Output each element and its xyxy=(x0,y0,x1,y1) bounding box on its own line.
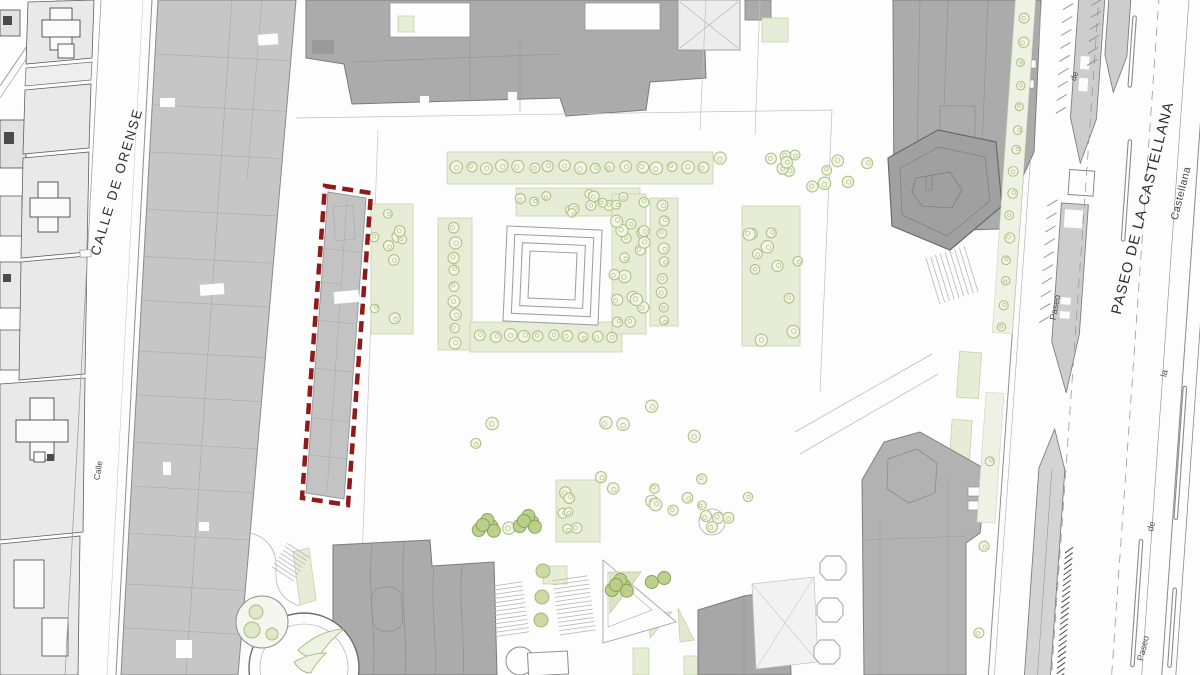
tree-icon xyxy=(549,330,559,340)
hatch-tick xyxy=(1059,634,1067,641)
tree-icon xyxy=(389,255,400,266)
tree-icon xyxy=(491,332,502,343)
tree-icon xyxy=(755,334,767,346)
green-circle xyxy=(244,622,260,638)
hatch-tick xyxy=(1059,629,1067,636)
tree-icon xyxy=(974,628,985,639)
dense-tree-icon xyxy=(609,578,622,591)
courtyard xyxy=(200,283,225,296)
tree-icon xyxy=(650,498,662,510)
tree-icon xyxy=(481,163,493,175)
courtyard xyxy=(258,33,279,45)
platform-opening xyxy=(1059,311,1069,319)
stair-line xyxy=(556,601,592,606)
tree-icon xyxy=(723,512,734,523)
hatch-tick xyxy=(1062,591,1070,598)
building-footprint xyxy=(42,20,80,37)
hatch-tick xyxy=(1044,238,1054,246)
hatch-tick xyxy=(1043,264,1053,272)
plan-svg: CALLE DE ORENSE Calle PASEO DE LA CASTEL… xyxy=(0,0,1200,675)
tree-icon xyxy=(832,155,844,167)
parcel xyxy=(23,84,91,154)
tree-icon xyxy=(1016,81,1025,90)
hatch-tick xyxy=(1061,607,1069,614)
tree-icon xyxy=(449,337,461,349)
platform-opening xyxy=(1078,78,1088,92)
tree-icon xyxy=(657,200,668,211)
stairs-hatch xyxy=(552,576,595,635)
hatch-tick xyxy=(1056,106,1066,114)
hatch-tick xyxy=(1065,552,1073,559)
tree-icon xyxy=(743,228,755,240)
central-monument xyxy=(503,226,602,325)
edge-building xyxy=(0,330,20,370)
tree-icon xyxy=(999,300,1009,310)
courtyard xyxy=(160,98,175,107)
stair-line xyxy=(558,613,594,618)
tree-icon xyxy=(512,160,524,172)
green-area xyxy=(742,206,800,346)
building-footprint xyxy=(16,420,68,442)
tree-icon xyxy=(842,176,853,187)
hatch-tick xyxy=(1044,251,1054,259)
tree-icon xyxy=(862,158,873,169)
roof-detail xyxy=(312,40,334,54)
tree-icon xyxy=(571,523,582,534)
monument-square xyxy=(503,226,602,325)
tree-icon xyxy=(600,417,612,429)
green-circle xyxy=(536,564,550,578)
stair-line xyxy=(555,597,591,602)
edge-building xyxy=(0,196,22,236)
building-footprint xyxy=(30,198,70,217)
tree-icon xyxy=(807,181,818,192)
hatch-tick xyxy=(1059,55,1069,63)
tree-icon xyxy=(486,417,498,429)
stair-line xyxy=(553,584,589,589)
tree-icon xyxy=(688,430,700,442)
label-paseo-de-la-castellana: PASEO DE LA CASTELLANA xyxy=(1109,100,1177,316)
building-block xyxy=(121,0,296,675)
tree-icon xyxy=(564,508,573,517)
hatch-tick xyxy=(1057,667,1065,674)
hatch-tick xyxy=(1042,277,1052,285)
green-circle xyxy=(534,613,548,627)
hatch-tick xyxy=(1062,585,1070,592)
courtyard xyxy=(585,3,660,30)
hatch-tick xyxy=(1058,645,1066,652)
tree-icon xyxy=(750,265,760,275)
tree-icon xyxy=(766,153,777,164)
tree-icon xyxy=(1005,211,1014,220)
hatch-tick xyxy=(1061,602,1069,609)
tree-icon xyxy=(617,418,630,431)
green-area xyxy=(293,548,316,605)
label-de-right: de xyxy=(1145,520,1157,532)
tree-icon xyxy=(611,215,623,227)
hatch-tick xyxy=(1046,212,1056,220)
tree-icon xyxy=(607,332,617,342)
tree-icon xyxy=(450,161,462,173)
tree-icon xyxy=(575,162,587,174)
label-paseo-bottom: Paseo xyxy=(1135,635,1151,662)
stair-line xyxy=(559,626,595,631)
building-footprint xyxy=(34,452,45,462)
tree-icon xyxy=(639,226,650,237)
stair-line xyxy=(555,592,591,597)
stair-line xyxy=(557,609,593,614)
edge-building-detail xyxy=(3,274,11,282)
tree-icon xyxy=(609,269,619,279)
stair-line xyxy=(559,622,595,627)
tree-icon xyxy=(504,329,517,342)
access-structure xyxy=(1068,169,1095,196)
hatch-tick xyxy=(1062,16,1072,24)
tree-icon xyxy=(496,160,508,172)
tree-icon xyxy=(618,270,630,282)
tree-icon xyxy=(1019,13,1030,24)
hatch-tick xyxy=(1047,199,1057,207)
building-detail xyxy=(47,454,54,461)
tree-icon xyxy=(657,274,667,284)
tree-icon xyxy=(612,294,623,305)
planter-octagon xyxy=(817,598,843,622)
hatch-tick xyxy=(1045,225,1055,233)
tree-icon xyxy=(997,323,1006,332)
hatch-tick xyxy=(1060,42,1070,50)
tree-icon xyxy=(619,193,628,202)
tree-icon xyxy=(714,152,726,164)
hatch-tick xyxy=(1063,580,1071,587)
tree-icon xyxy=(389,313,400,324)
tree-icon xyxy=(818,177,830,189)
green-circle xyxy=(535,590,549,604)
tree-icon xyxy=(682,161,695,174)
tree-icon xyxy=(590,163,600,173)
courtyard xyxy=(176,640,192,658)
courtyard xyxy=(163,462,171,475)
tree-icon xyxy=(668,505,678,515)
building-footprint xyxy=(42,618,68,656)
tree-icon xyxy=(450,309,461,320)
tree-icon xyxy=(449,237,461,249)
label-castellana: Castellana xyxy=(1169,165,1194,221)
tree-icon xyxy=(383,241,393,251)
hatch-tick xyxy=(1060,623,1068,630)
green-area xyxy=(956,351,981,398)
dense-tree-icon xyxy=(658,572,671,585)
hatch-tick xyxy=(1058,68,1068,76)
planter-octagons xyxy=(814,556,846,664)
stair-line xyxy=(491,599,525,604)
tree-icon xyxy=(784,293,794,303)
walkway-curve xyxy=(248,532,300,606)
dense-tree-icon xyxy=(476,518,489,531)
planter-circle xyxy=(236,596,288,648)
parcel xyxy=(19,256,87,380)
tree-icon xyxy=(650,162,663,175)
hatch-tick xyxy=(1063,574,1071,581)
tree-icon xyxy=(533,331,543,341)
tree-icon xyxy=(637,162,648,173)
hatch-tick xyxy=(1063,3,1073,11)
edge-building-detail xyxy=(4,132,14,144)
tree-icon xyxy=(645,400,657,412)
stair-line xyxy=(558,617,594,622)
stair-line xyxy=(560,630,596,635)
tree-icon xyxy=(589,191,600,202)
building-block xyxy=(745,0,771,20)
stair-line xyxy=(494,623,528,628)
tower-building xyxy=(888,130,1002,250)
tree-icon xyxy=(620,161,631,172)
hatch-tick xyxy=(1060,618,1068,625)
platform-opening xyxy=(1060,297,1070,305)
tree-icon xyxy=(658,243,669,254)
courtyard xyxy=(420,96,429,110)
tree-icon xyxy=(625,317,635,327)
site-building xyxy=(306,192,366,499)
tree-icon xyxy=(542,161,553,172)
tree-icon xyxy=(448,252,459,263)
stairs-hatch xyxy=(926,246,978,304)
green-circle xyxy=(266,628,278,640)
tree-icon xyxy=(370,233,379,242)
tree-icon xyxy=(698,162,709,173)
hatch-tick xyxy=(1064,558,1072,565)
tree-icon xyxy=(639,237,650,248)
tree-icon xyxy=(752,249,762,259)
label-la: la xyxy=(1158,369,1169,378)
platform-opening xyxy=(1080,56,1090,70)
planter-octagon xyxy=(814,640,840,664)
green-area xyxy=(762,18,788,42)
lane-dash-line xyxy=(1108,0,1161,675)
tree-icon xyxy=(656,287,667,298)
hatch-tick xyxy=(1058,651,1066,658)
parcel xyxy=(25,62,92,86)
tree-icon xyxy=(630,293,642,305)
tree-icon xyxy=(639,197,649,207)
green-wedge xyxy=(678,608,694,642)
dense-tree-icon xyxy=(517,514,530,527)
hatch-tick xyxy=(1064,569,1072,576)
planter-octagon xyxy=(820,556,846,580)
site-plan-map: CALLE DE ORENSE Calle PASEO DE LA CASTEL… xyxy=(0,0,1200,675)
lane-divider xyxy=(1123,142,1130,240)
tree-icon xyxy=(595,472,606,483)
hatch-tick xyxy=(1060,613,1068,620)
orense-block xyxy=(121,0,296,675)
platform-opening xyxy=(1064,209,1083,228)
tree-icon xyxy=(1015,102,1023,110)
label-calle: Calle xyxy=(91,460,104,481)
tree-icon xyxy=(659,303,668,312)
tree-icon xyxy=(1018,37,1029,48)
tree-icon xyxy=(743,492,752,501)
tree-icon xyxy=(530,163,540,173)
hatch-tick xyxy=(1057,662,1065,669)
green-area xyxy=(398,16,414,32)
label-calle-de-orense: CALLE DE ORENSE xyxy=(88,106,146,257)
stair-line xyxy=(492,607,526,612)
tree-icon xyxy=(772,260,783,271)
hatch-tick xyxy=(1061,29,1071,37)
stair-line xyxy=(556,605,592,610)
building-block xyxy=(862,432,987,675)
hatch-tick xyxy=(1057,94,1067,102)
tree-icon xyxy=(474,330,485,341)
tree-icon xyxy=(659,216,669,226)
edge-building-detail xyxy=(3,16,12,25)
walkway-line xyxy=(795,354,932,432)
stair-line xyxy=(491,603,525,608)
tree-icon xyxy=(1008,166,1018,176)
dense-tree-icon xyxy=(645,576,658,589)
hatch-tick xyxy=(1057,656,1065,663)
stair-line xyxy=(493,615,527,620)
courtyard xyxy=(199,522,209,531)
tree-icon xyxy=(707,522,718,533)
green-circle xyxy=(249,605,263,619)
green-area xyxy=(633,648,649,675)
hatch-tick xyxy=(1041,290,1051,298)
hatch-tick xyxy=(1065,547,1073,554)
tree-icon xyxy=(394,226,405,237)
tree-icon xyxy=(559,160,570,171)
tree-icon xyxy=(562,330,573,341)
tree-icon xyxy=(781,157,792,168)
hatch-tick xyxy=(1062,596,1070,603)
tree-icon xyxy=(449,265,459,275)
west-district xyxy=(0,0,94,675)
stair-line xyxy=(554,588,590,593)
tree-icon xyxy=(979,541,990,552)
stair-line xyxy=(494,619,528,624)
site-building-gap xyxy=(334,290,360,304)
green-area xyxy=(684,656,698,675)
stair-line xyxy=(493,611,527,616)
platform xyxy=(1102,0,1132,93)
courtyard xyxy=(508,92,517,106)
tree-icon xyxy=(448,296,460,308)
tree-icon xyxy=(1016,58,1024,66)
tree-icon xyxy=(1001,276,1010,285)
lane-line xyxy=(1172,0,1200,675)
platform xyxy=(1022,428,1068,675)
hatch-tick xyxy=(1058,81,1068,89)
building-footprint xyxy=(58,44,74,58)
hatch-tick xyxy=(1059,640,1067,647)
stair-line xyxy=(496,632,530,637)
tree-icon xyxy=(607,483,619,495)
hatch-tick xyxy=(1064,563,1072,570)
project-site xyxy=(302,186,371,505)
structure-outline xyxy=(527,651,568,675)
tree-icon xyxy=(471,438,481,448)
stair-line xyxy=(495,628,529,633)
tree-icon xyxy=(787,325,800,338)
building-footprint xyxy=(14,560,44,608)
plaza-boundary xyxy=(820,110,832,392)
tree-icon xyxy=(761,241,773,253)
tree-icon xyxy=(697,474,707,484)
